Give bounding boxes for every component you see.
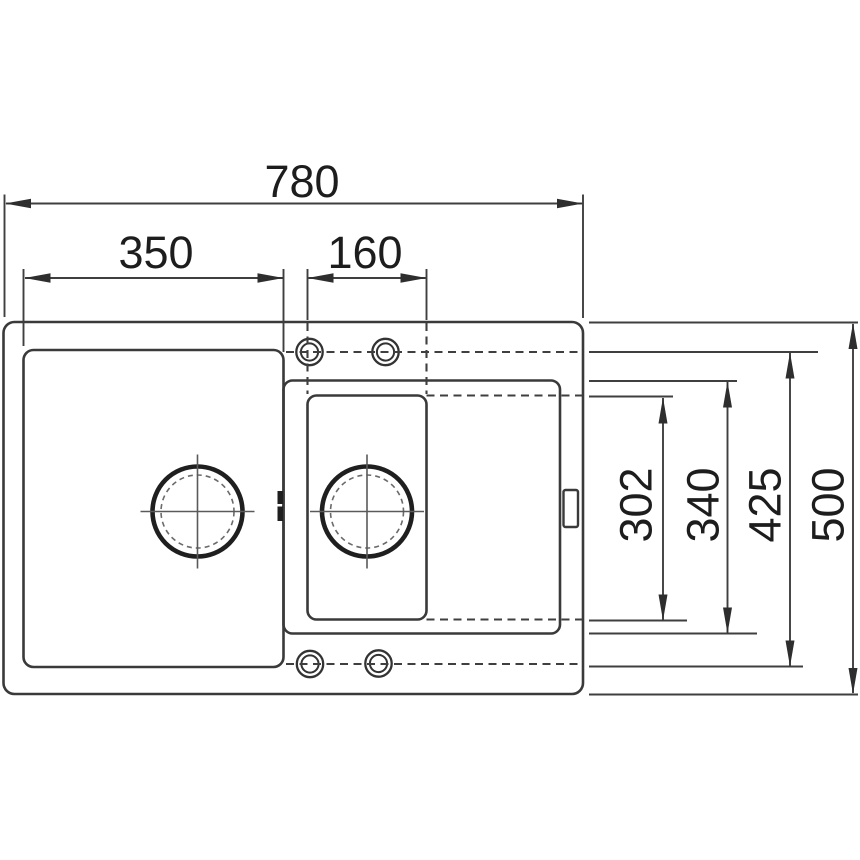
dim-label-160: 160 bbox=[327, 227, 402, 278]
dimension-drainer-length: 340 bbox=[678, 382, 733, 634]
half-bowl-drain-icon bbox=[310, 455, 424, 569]
main-bowl-drain-icon bbox=[141, 455, 255, 569]
dim-label-425: 425 bbox=[740, 467, 791, 542]
technical-drawing-svg: 780 350 160 302 bbox=[0, 0, 860, 860]
drainboard-section bbox=[284, 381, 561, 634]
sink-dimension-drawing: 780 350 160 302 bbox=[0, 0, 860, 860]
arrowhead-down bbox=[786, 641, 795, 667]
dimension-overall-width: 780 bbox=[5, 156, 584, 318]
arrowhead-down bbox=[849, 668, 858, 694]
dimension-half-bowl-width: 160 bbox=[308, 227, 427, 320]
arrowhead-right bbox=[401, 273, 427, 283]
dimension-overall-depth: 500 bbox=[803, 323, 858, 694]
arrowhead-up bbox=[659, 398, 668, 424]
overflow-marker bbox=[278, 491, 284, 521]
arrowhead-right bbox=[557, 199, 583, 209]
dim-label-500: 500 bbox=[803, 467, 854, 542]
dim-label-780: 780 bbox=[264, 156, 339, 207]
arrowhead-down bbox=[723, 608, 732, 634]
sink-outline bbox=[4, 322, 584, 694]
dim-label-350: 350 bbox=[118, 227, 193, 278]
dim-label-302: 302 bbox=[611, 467, 662, 542]
arrowhead-left bbox=[5, 199, 31, 209]
arrowhead-up bbox=[723, 382, 732, 408]
dim-label-340: 340 bbox=[678, 467, 729, 542]
dimension-bowl-length: 425 bbox=[740, 353, 795, 667]
arrowhead-down bbox=[659, 595, 668, 621]
sink-outer-rim bbox=[4, 322, 584, 694]
arrowhead-up bbox=[786, 353, 795, 379]
arrowhead-up bbox=[849, 323, 858, 349]
overflow-slot-marker bbox=[564, 490, 579, 527]
dimension-half-bowl-length: 302 bbox=[611, 398, 668, 621]
hidden-lines bbox=[286, 323, 582, 664]
dimension-main-bowl-width: 350 bbox=[24, 227, 284, 352]
arrowhead-left bbox=[25, 273, 51, 283]
arrowhead-right bbox=[258, 273, 284, 283]
